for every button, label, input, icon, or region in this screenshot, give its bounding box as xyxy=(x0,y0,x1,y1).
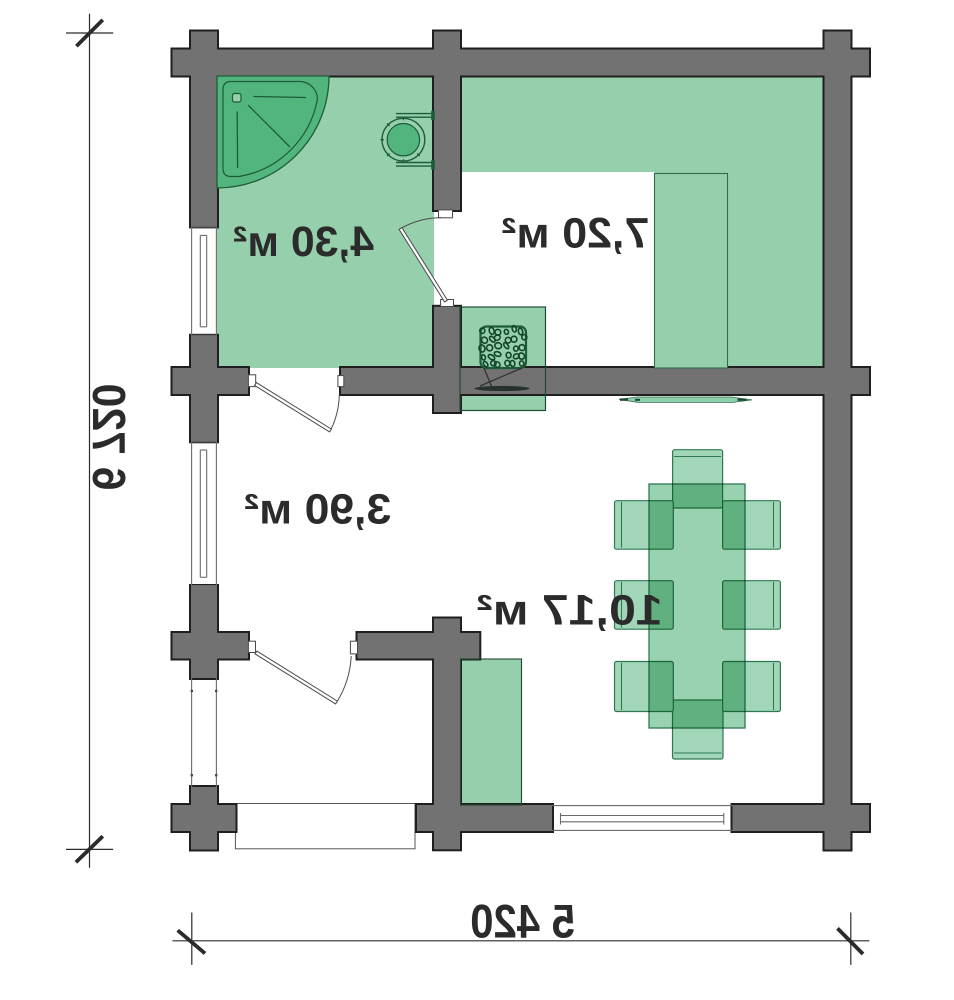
svg-text:4,30 м²: 4,30 м² xyxy=(233,218,374,266)
svg-text:10,17 м²: 10,17 м² xyxy=(477,587,663,635)
svg-text:6 720: 6 720 xyxy=(83,384,135,491)
svg-text:5 420: 5 420 xyxy=(470,895,575,948)
svg-text:7,20 м²: 7,20 м² xyxy=(502,209,650,257)
svg-text:3,90 м²: 3,90 м² xyxy=(244,485,391,533)
